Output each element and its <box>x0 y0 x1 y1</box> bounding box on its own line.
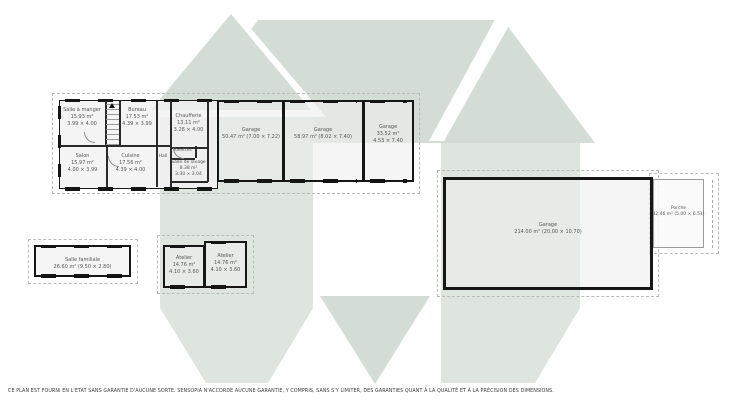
room-name: Atelier <box>217 253 233 260</box>
wall-segments-bottom <box>224 179 277 183</box>
label-garage-1: Garage 50.47 m² (7.00 × 7.22) <box>219 127 283 141</box>
room-area: 14.76 m² <box>173 262 196 269</box>
room-dims: 4.39 × 3.99 <box>122 121 152 128</box>
dimension-line-porche <box>712 180 713 248</box>
room-name: Garage <box>242 127 260 134</box>
label-salle-familiale: Salle familiale 26.60 m² (9.50 × 2.80) <box>36 257 129 271</box>
label-salle-de-lavage: Salle de lavage 8.38 m² 3.30 × 3.04 <box>170 158 207 180</box>
wall-segments-top <box>211 241 240 245</box>
room-name: Hall <box>159 154 168 160</box>
label-garage-2: Garage 58.97 m² (8.02 × 7.40) <box>285 127 361 141</box>
wall-segments-top <box>170 245 198 249</box>
wall-segments-top <box>224 100 277 104</box>
room-area: 32.46 m² (5.00 × 6.51) <box>652 212 704 218</box>
room-area: 14.76 m² <box>214 260 237 267</box>
label-salon: Salon 15.97 m² 4.00 × 3.99 <box>60 152 105 174</box>
label-cuisine: Cuisine 17.56 m² 4.39 × 4.00 <box>105 152 156 174</box>
label-grand-garage: Garage 214.00 m² (20.00 × 10.70) <box>445 222 651 236</box>
room-name: Garage <box>314 127 332 134</box>
room-name: Garage <box>539 222 557 229</box>
room-name: Toilettes <box>173 148 192 154</box>
room-area: 26.60 m² (9.50 × 2.80) <box>54 264 112 271</box>
room-name: Bureau <box>128 107 146 114</box>
label-atelier-droit: Atelier 14.76 m² 4.10 × 3.60 <box>204 253 247 273</box>
wall <box>60 145 170 147</box>
room-garage-2 <box>283 100 364 182</box>
label-bureau: Bureau 17.53 m² 4.39 × 3.99 <box>118 106 156 128</box>
room-area: 58.97 m² (8.02 × 7.40) <box>294 134 352 141</box>
wall-segments-top <box>41 245 124 249</box>
room-dims: 4.00 × 3.99 <box>68 167 98 174</box>
wall-segments-bottom <box>170 285 198 289</box>
room-dims: 4.53 × 7.40 <box>373 138 403 145</box>
label-hall: Hall <box>154 152 172 162</box>
room-area: 13.11 m² <box>177 120 200 127</box>
room-name: Chaufferie <box>176 113 202 120</box>
stair-direction-icon <box>109 103 115 108</box>
wall-segments-bottom <box>370 179 407 183</box>
room-dims: 3.28 × 4.00 <box>174 127 204 134</box>
room-dims: 3.30 × 3.04 <box>175 172 202 178</box>
room-area: 214.00 m² (20.00 × 10.70) <box>514 229 581 236</box>
wall-segments-top <box>370 100 407 104</box>
room-name: Salle familiale <box>65 257 100 264</box>
wall-segments-bottom <box>41 274 124 278</box>
room-area: 15.97 m² <box>71 160 94 167</box>
label-toilettes: Toilettes <box>170 146 195 157</box>
room-dims: 4.10 × 3.60 <box>211 267 241 274</box>
room-dims: 3.99 × 4.00 <box>67 121 97 128</box>
room-name: Salon <box>76 153 90 160</box>
wall <box>207 101 209 182</box>
door-arc <box>84 132 95 143</box>
room-dims: 4.10 × 3.60 <box>169 269 199 276</box>
label-garage-3: Garage 33.52 m² 4.53 × 7.40 <box>365 124 411 144</box>
floorplan-page: Salle à manger 15.93 m² 3.99 × 4.00 Bure… <box>0 0 736 414</box>
label-salle-a-manger: Salle à manger 15.93 m² 3.99 × 4.00 <box>60 106 104 128</box>
label-atelier-gauche: Atelier 14.76 m² 4.10 × 3.60 <box>163 255 205 275</box>
wall-segments-top <box>65 99 212 103</box>
label-porche: Porche 32.46 m² (5.00 × 6.51) <box>655 205 702 219</box>
room-area: 17.53 m² <box>126 114 149 121</box>
wall <box>156 101 158 145</box>
room-dims: 4.39 × 4.00 <box>116 167 146 174</box>
room-area: 17.56 m² <box>119 160 142 167</box>
wall-segments-bottom <box>290 179 357 183</box>
disclaimer-text: CE PLAN EST FOURNI EN L'ETAT SANS GARANT… <box>8 389 732 394</box>
room-name: Garage <box>379 124 397 131</box>
wall-segments-top <box>290 100 357 104</box>
label-chaufferie: Chaufferie 13.11 m² 3.28 × 4.00 <box>170 112 207 134</box>
wall <box>170 181 208 183</box>
room-name: Salle à manger <box>63 107 101 114</box>
wall-segments-bottom <box>65 187 212 191</box>
room-area: 50.47 m² (7.00 × 7.22) <box>222 134 280 141</box>
room-garage-1 <box>217 100 284 182</box>
room-area: 33.52 m² <box>377 131 400 138</box>
room-name: Cuisine <box>121 153 139 160</box>
wall-segments-bottom <box>211 285 240 289</box>
room-area: 15.93 m² <box>71 114 94 121</box>
room-name: Atelier <box>176 255 192 262</box>
